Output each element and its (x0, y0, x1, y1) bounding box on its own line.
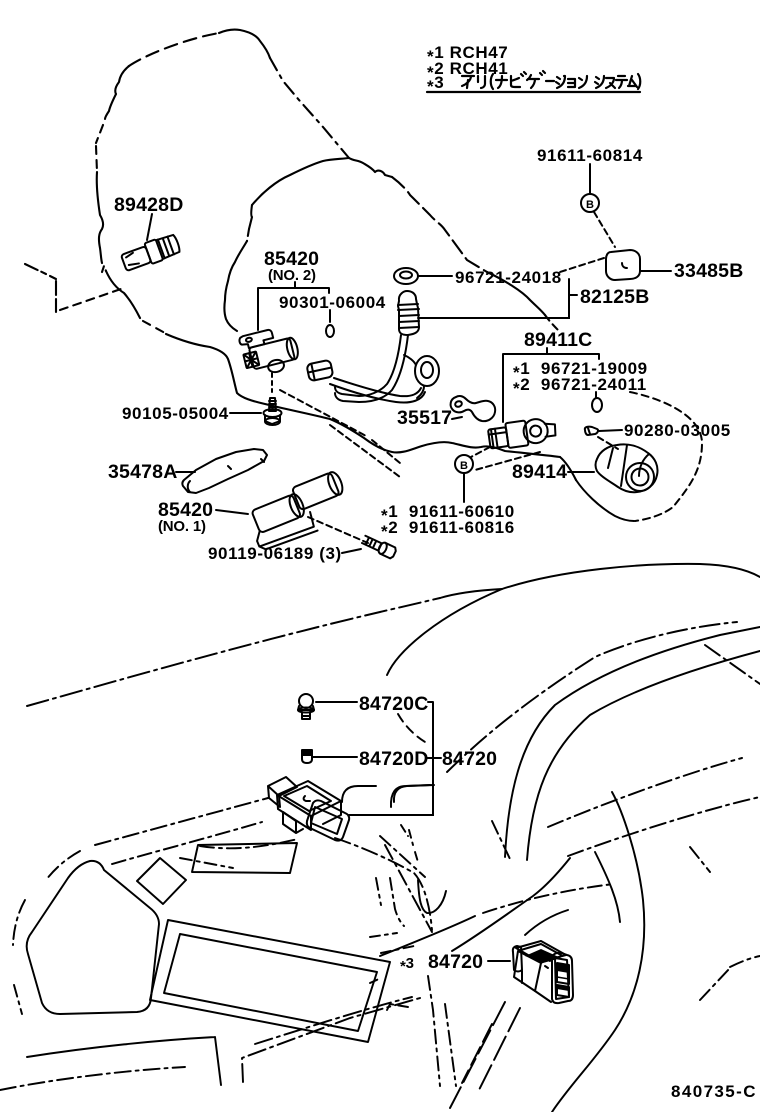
svg-text:89428D: 89428D (114, 194, 184, 216)
svg-text:91611-60814: 91611-60814 (537, 146, 643, 165)
svg-text:35478A: 35478A (108, 461, 178, 483)
svg-text:(NO. 2): (NO. 2) (268, 267, 316, 284)
svg-text:84720: 84720 (428, 951, 483, 973)
svg-text:90105-05004: 90105-05004 (122, 404, 229, 423)
svg-text:84720C: 84720C (359, 693, 429, 715)
svg-text:*2 91611-60816: *2 91611-60816 (381, 518, 515, 541)
svg-text:33485B: 33485B (674, 260, 744, 282)
svg-text:B: B (586, 199, 594, 211)
svg-text:35517: 35517 (397, 407, 452, 429)
svg-text:89414: 89414 (512, 461, 567, 483)
svg-text:84720: 84720 (442, 748, 497, 770)
svg-text:840735-C: 840735-C (671, 1082, 757, 1101)
svg-text:90280-03005: 90280-03005 (624, 421, 731, 440)
svg-text:*3: *3 (400, 955, 414, 975)
svg-text:89411C: 89411C (524, 329, 592, 351)
svg-text:84720D: 84720D (359, 748, 429, 770)
svg-text:90301-06004: 90301-06004 (279, 293, 386, 312)
svg-text:B: B (460, 460, 468, 472)
svg-text:*2 96721-24011: *2 96721-24011 (513, 375, 647, 398)
svg-text:(NO. 1): (NO. 1) (158, 518, 206, 535)
svg-text:82125B: 82125B (580, 286, 650, 308)
